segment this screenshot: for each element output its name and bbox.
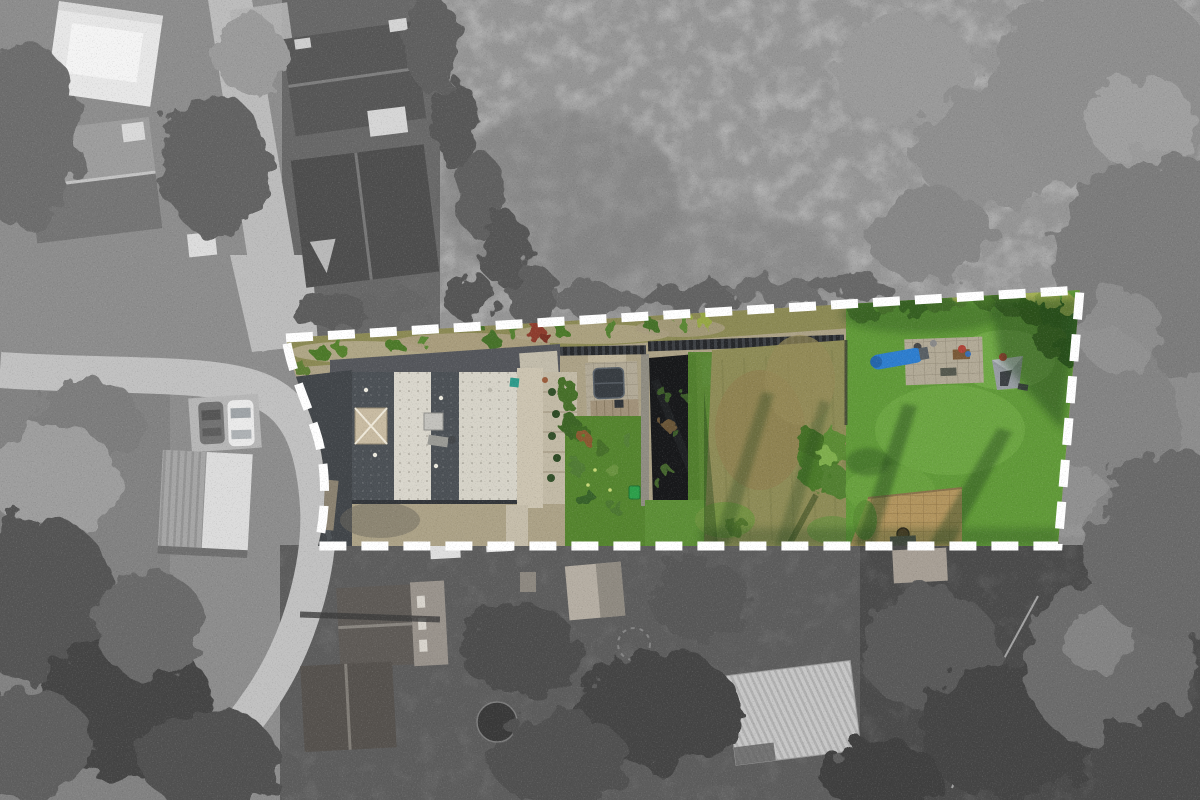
- aerial-photo: [0, 0, 1200, 800]
- grain-dark: [0, 0, 1200, 800]
- aerial-photo-svg: [0, 0, 1200, 800]
- film-grain: [0, 0, 1200, 800]
